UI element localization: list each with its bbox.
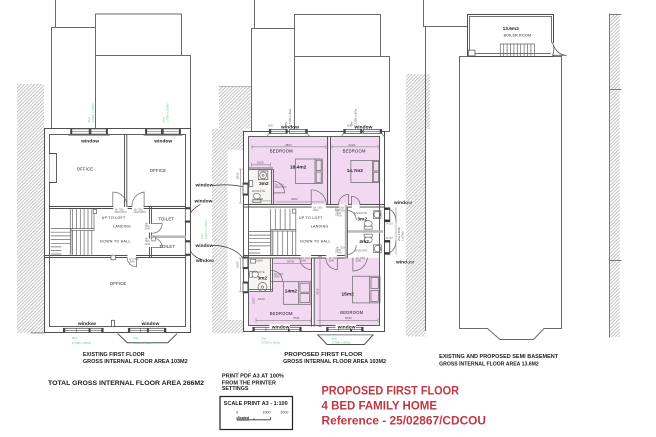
svg-text:window: window bbox=[141, 321, 160, 327]
svg-text:FPUK: FPUK bbox=[336, 215, 343, 218]
svg-text:1730h x 605w: 1730h x 605w bbox=[91, 102, 95, 122]
svg-text:3m2: 3m2 bbox=[258, 276, 268, 282]
svg-text:TOTAL GROSS INTERNAL FLOOR ARE: TOTAL GROSS INTERNAL FLOOR AREA 266M2 bbox=[48, 380, 204, 387]
svg-text:2022: 2022 bbox=[236, 172, 240, 179]
svg-text:1730h x 605w: 1730h x 605w bbox=[332, 341, 352, 345]
svg-text:OFFICE: OFFICE bbox=[110, 281, 127, 286]
svg-text:A/C: A/C bbox=[347, 124, 353, 128]
svg-text:14 157: 14 157 bbox=[386, 237, 394, 240]
svg-text:DOWN TO HALL: DOWN TO HALL bbox=[100, 240, 130, 244]
svg-text:14 157: 14 157 bbox=[386, 223, 394, 226]
svg-text:0: 0 bbox=[236, 410, 238, 414]
svg-text:1400: 1400 bbox=[257, 197, 264, 201]
svg-text:GROSS INTERNAL FLOOR AREA 103M: GROSS INTERNAL FLOOR AREA 103M2 bbox=[83, 359, 188, 365]
svg-text:6293: 6293 bbox=[345, 316, 352, 320]
svg-text:ENSUITE: ENSUITE bbox=[355, 248, 368, 252]
svg-text:14m2: 14m2 bbox=[285, 288, 298, 294]
svg-text:1020: 1020 bbox=[257, 161, 264, 165]
svg-text:BEDROOM: BEDROOM bbox=[343, 149, 366, 154]
svg-text:2040: 2040 bbox=[301, 260, 307, 263]
svg-text:1730h x 605w: 1730h x 605w bbox=[133, 341, 153, 345]
svg-text:2040 FPUK: 2040 FPUK bbox=[115, 211, 128, 214]
svg-text:UP TO LOFT: UP TO LOFT bbox=[102, 216, 126, 220]
svg-text:window: window bbox=[337, 325, 356, 331]
svg-text:GROSS INTERNAL FLOOR AREA 103M: GROSS INTERNAL FLOOR AREA 103M2 bbox=[283, 359, 386, 365]
svg-text:4 BED FAMILY HOME: 4 BED FAMILY HOME bbox=[322, 401, 438, 413]
svg-text:2223: 2223 bbox=[349, 143, 356, 147]
svg-text:BEDROOM: BEDROOM bbox=[270, 149, 293, 154]
svg-text:window: window bbox=[195, 182, 214, 188]
svg-text:BEDROOM: BEDROOM bbox=[340, 310, 363, 315]
svg-text:SETTINGS: SETTINGS bbox=[222, 386, 249, 392]
svg-text:window: window bbox=[194, 199, 213, 205]
svg-text:3m2: 3m2 bbox=[359, 239, 369, 245]
svg-text:EXISTING AND PROPOSED SEMI BAS: EXISTING AND PROPOSED SEMI BASEMENT bbox=[439, 354, 559, 360]
svg-text:UP TO LOFT: UP TO LOFT bbox=[299, 216, 323, 220]
svg-text:3m2: 3m2 bbox=[259, 181, 269, 187]
svg-text:2040 FPUK: 2040 FPUK bbox=[275, 186, 288, 189]
svg-text:13.6m2: 13.6m2 bbox=[503, 26, 520, 32]
svg-text:GROSS INTERNAL FLOOR AREA 13.6: GROSS INTERNAL FLOOR AREA 13.6M2 bbox=[439, 362, 539, 368]
svg-text:PROPOSED FIRST FLOOR: PROPOSED FIRST FLOOR bbox=[284, 352, 362, 358]
svg-text:x 675w: x 675w bbox=[400, 231, 404, 241]
svg-text:SCALE PRINT A3 - 1:100: SCALE PRINT A3 - 1:100 bbox=[224, 401, 288, 407]
svg-text:window: window bbox=[271, 325, 290, 331]
svg-text:EXISTING FIRST FLOOR: EXISTING FIRST FLOOR bbox=[83, 352, 145, 358]
svg-text:window: window bbox=[354, 125, 373, 131]
svg-text:3m2: 3m2 bbox=[357, 217, 367, 223]
svg-text:BEDROOM: BEDROOM bbox=[270, 311, 293, 316]
svg-text:ENSUITE: ENSUITE bbox=[252, 270, 265, 274]
svg-text:LANDING: LANDING bbox=[113, 224, 131, 228]
svg-text:1730h x 605w: 1730h x 605w bbox=[166, 102, 170, 122]
svg-text:OFFICE: OFFICE bbox=[77, 167, 94, 172]
svg-text:1400h x 675w: 1400h x 675w bbox=[204, 219, 208, 239]
svg-text:2040: 2040 bbox=[329, 260, 335, 263]
svg-text:2040: 2040 bbox=[145, 243, 151, 246]
svg-text:3ha: 3ha bbox=[133, 336, 138, 340]
svg-text:2478: 2478 bbox=[287, 260, 294, 264]
svg-text:2000: 2000 bbox=[280, 410, 288, 414]
svg-text:PRINT PDF A3 AT 100%: PRINT PDF A3 AT 100% bbox=[222, 374, 284, 380]
svg-text:ENSUITE: ENSUITE bbox=[252, 189, 265, 193]
svg-text:2107: 2107 bbox=[252, 297, 256, 304]
svg-text:window: window bbox=[280, 125, 299, 131]
svg-text:DOWN TO HALL: DOWN TO HALL bbox=[300, 240, 330, 244]
svg-text:window: window bbox=[195, 243, 214, 249]
svg-text:TOILET: TOILET bbox=[159, 244, 175, 249]
svg-text:2040: 2040 bbox=[145, 228, 151, 231]
svg-text:2040: 2040 bbox=[274, 276, 280, 279]
svg-text:1600: 1600 bbox=[256, 259, 263, 263]
svg-text:Scaled: Scaled bbox=[238, 416, 250, 420]
svg-text:ENSUITE: ENSUITE bbox=[354, 211, 367, 215]
svg-text:window: window bbox=[153, 139, 172, 145]
svg-text:1730h x 605w: 1730h x 605w bbox=[261, 341, 281, 345]
svg-text:window: window bbox=[77, 321, 96, 327]
svg-text:2040 FPUK: 2040 FPUK bbox=[134, 211, 147, 214]
svg-text:A/C: A/C bbox=[268, 124, 274, 128]
svg-text:window: window bbox=[195, 258, 214, 264]
svg-text:window: window bbox=[80, 139, 99, 145]
svg-text:1023: 1023 bbox=[258, 297, 265, 301]
svg-text:4807: 4807 bbox=[285, 143, 292, 147]
svg-text:7041: 7041 bbox=[293, 316, 300, 320]
svg-text:1730h x 605w: 1730h x 605w bbox=[72, 341, 92, 345]
svg-text:4115: 4115 bbox=[316, 288, 320, 295]
svg-text:FPUK: FPUK bbox=[336, 252, 343, 255]
svg-text:TOILET: TOILET bbox=[158, 216, 174, 221]
svg-text:LANDING: LANDING bbox=[311, 225, 329, 229]
svg-text:2107: 2107 bbox=[236, 261, 240, 268]
svg-text:14.7m2: 14.7m2 bbox=[347, 168, 364, 174]
svg-text:OFFICE: OFFICE bbox=[150, 168, 167, 173]
svg-text:2040: 2040 bbox=[356, 260, 362, 263]
svg-text:1000: 1000 bbox=[263, 410, 271, 414]
svg-text:3ha: 3ha bbox=[72, 336, 77, 340]
svg-text:BOILER ROOM: BOILER ROOM bbox=[504, 34, 532, 38]
svg-text:2040: 2040 bbox=[129, 261, 135, 264]
svg-text:2040: 2040 bbox=[313, 209, 319, 212]
svg-text:1730h x 90w: 1730h x 90w bbox=[354, 108, 358, 126]
svg-text:3602: 3602 bbox=[291, 197, 298, 201]
svg-text:Reference - 25/02867/CDCOU: Reference - 25/02867/CDCOU bbox=[322, 416, 487, 428]
svg-text:18.4m2: 18.4m2 bbox=[290, 164, 307, 170]
svg-text:PROPOSED FIRST FLOOR: PROPOSED FIRST FLOOR bbox=[322, 385, 460, 397]
svg-text:1730h x 90w: 1730h x 90w bbox=[288, 108, 292, 126]
